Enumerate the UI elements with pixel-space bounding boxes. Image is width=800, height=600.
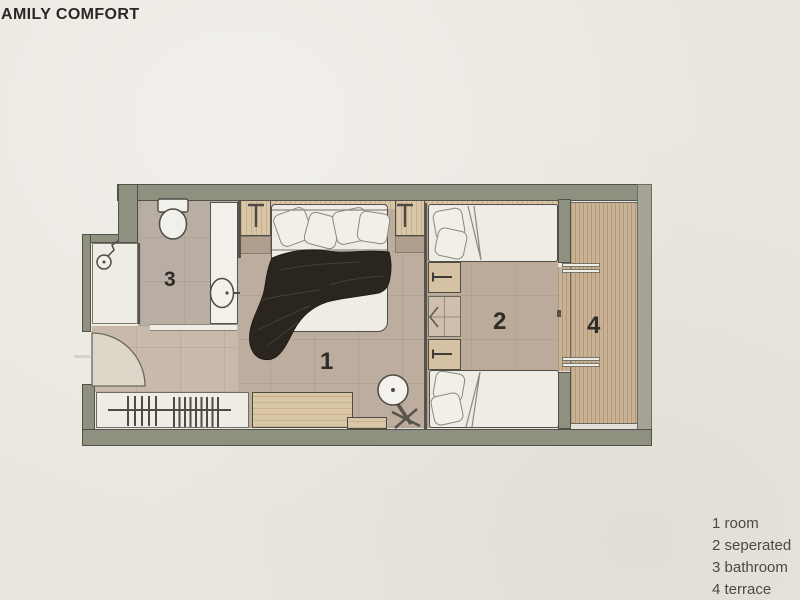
terrace-door-opening (558, 267, 570, 371)
vanity-counter (210, 202, 238, 324)
nightstand-bottom (428, 339, 461, 370)
exterior-mark (74, 355, 90, 358)
bathroom-threshold (150, 324, 237, 331)
room-label-2: 2 (493, 308, 506, 336)
terrace-step-track (562, 269, 600, 273)
legend-item-seperated: 2 seperated (712, 535, 791, 557)
closet-panel-left (240, 200, 271, 236)
pillow (433, 226, 468, 261)
bench-shelf-right (395, 236, 425, 253)
wall-bottom (82, 429, 652, 446)
shower-wall-line (138, 243, 140, 324)
dresser (252, 392, 353, 428)
bench-shelf-left (240, 236, 271, 254)
wall-bathroom-west (118, 184, 138, 243)
wardrobe-floor (96, 392, 249, 428)
wall-terrace-lower (558, 372, 571, 429)
legend-item-bathroom: 3 bathroom (712, 557, 791, 579)
closet-panel-right (395, 200, 425, 236)
terrace-step-track (562, 363, 600, 367)
legend-item-room: 1 room (712, 513, 791, 535)
legend: 1 room 2 seperated 3 bathroom 4 terrace (712, 513, 791, 600)
pillow (429, 391, 465, 427)
room-label-4: 4 (587, 312, 600, 340)
page-title: AMILY COMFORT (1, 6, 140, 24)
floor-plan-page: AMILY COMFORT (0, 0, 800, 600)
terrace-deck (570, 202, 638, 424)
hallway-floor (92, 326, 238, 392)
terrace-step-track (562, 263, 600, 267)
wall-top (117, 184, 652, 201)
room-label-1: 1 (320, 348, 333, 376)
wall-left-lower (82, 384, 95, 430)
room-label-3: 3 (164, 268, 176, 292)
luggage-bench (347, 417, 387, 429)
pillow (356, 210, 391, 245)
legend-item-terrace: 4 terrace (712, 579, 791, 600)
bathroom-wall-line (238, 200, 241, 258)
room-divider-line (424, 203, 427, 429)
shower-area (92, 243, 138, 324)
wall-right (637, 184, 652, 445)
terrace-step-track (562, 357, 600, 361)
nightstand-top (428, 262, 461, 293)
wall-terrace-upper (558, 199, 571, 263)
shelf-unit (428, 296, 461, 337)
sliding-door-handle (557, 310, 561, 317)
wall-left (82, 234, 91, 332)
